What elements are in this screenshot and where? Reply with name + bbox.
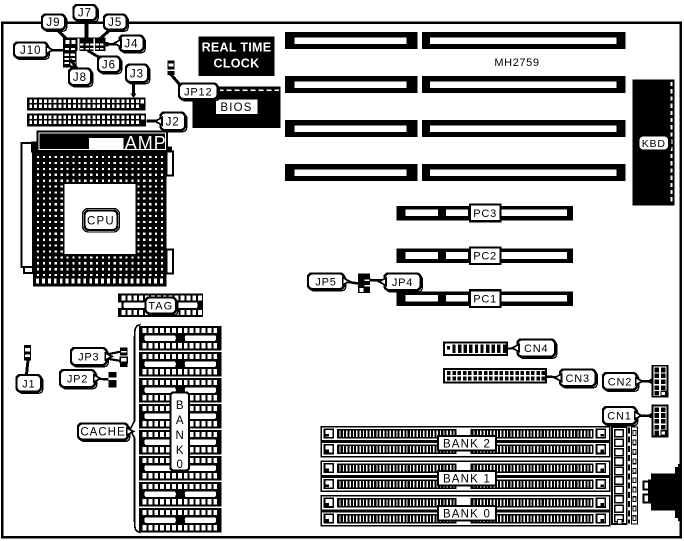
- svg-text:J9: J9: [46, 17, 60, 29]
- svg-text:CN3: CN3: [566, 373, 590, 385]
- svg-text:AMP: AMP: [125, 133, 167, 153]
- svg-text:JP5: JP5: [315, 276, 336, 288]
- svg-text:N: N: [176, 430, 184, 442]
- svg-text:KBD: KBD: [642, 138, 666, 150]
- svg-text:MH2759: MH2759: [494, 57, 539, 69]
- svg-text:TAG: TAG: [148, 301, 173, 313]
- svg-text:B: B: [176, 400, 184, 412]
- svg-text:PC3: PC3: [473, 208, 497, 220]
- svg-text:BANK 1: BANK 1: [443, 473, 491, 485]
- svg-text:J7: J7: [78, 8, 92, 20]
- svg-text:J1: J1: [22, 378, 35, 390]
- svg-text:J4: J4: [124, 38, 138, 50]
- svg-text:CPU: CPU: [87, 216, 115, 228]
- svg-text:J6: J6: [102, 59, 116, 71]
- svg-text:CN4: CN4: [524, 343, 548, 355]
- svg-text:CN1: CN1: [607, 411, 631, 423]
- svg-text:PC1: PC1: [473, 294, 497, 306]
- svg-text:CN2: CN2: [608, 376, 632, 388]
- svg-text:PC2: PC2: [473, 251, 497, 263]
- svg-text:JP4: JP4: [392, 277, 413, 289]
- svg-text:J3: J3: [130, 68, 144, 80]
- svg-text:J8: J8: [73, 72, 87, 84]
- svg-text:J2: J2: [166, 116, 180, 128]
- svg-text:BANK 2: BANK 2: [443, 438, 491, 450]
- svg-text:JP2: JP2: [67, 374, 88, 386]
- svg-text:CLOCK: CLOCK: [214, 57, 260, 71]
- svg-text:BANK 0: BANK 0: [443, 508, 491, 520]
- svg-text:JP12: JP12: [184, 86, 212, 98]
- svg-text:J5: J5: [108, 17, 122, 29]
- svg-text:J10: J10: [20, 45, 42, 57]
- svg-text:CACHE: CACHE: [80, 427, 125, 439]
- svg-text:K: K: [176, 445, 184, 457]
- svg-text:BIOS: BIOS: [220, 102, 252, 114]
- svg-text:REAL TIME: REAL TIME: [202, 41, 272, 55]
- svg-text:0: 0: [176, 459, 182, 471]
- svg-text:A: A: [176, 415, 184, 427]
- svg-text:JP3: JP3: [78, 352, 99, 364]
